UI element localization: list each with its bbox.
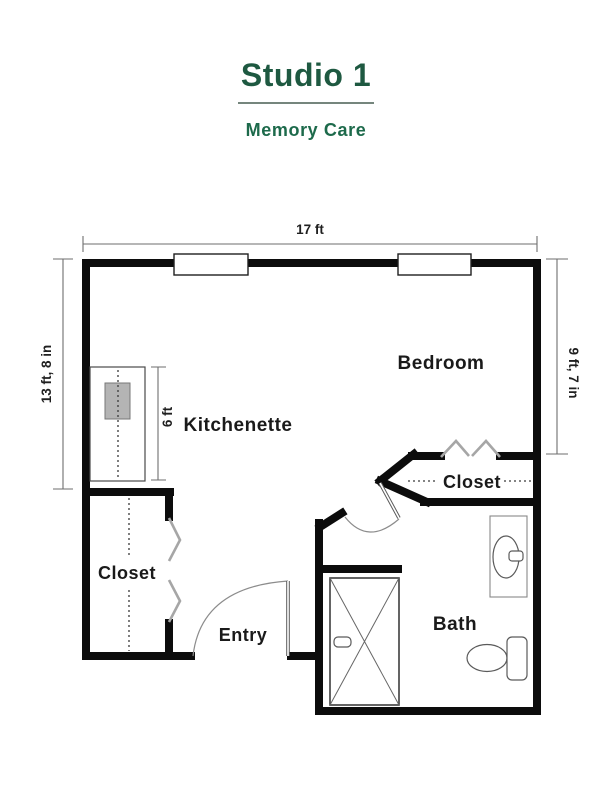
bath-label: Bath [433, 614, 477, 635]
toilet-bowl [467, 645, 507, 672]
window-left [174, 254, 248, 275]
bathroom-door-arc [345, 517, 399, 532]
dimension-kitchenette: 6 ft [151, 367, 175, 480]
closet-left-bifold-door-upper [169, 518, 180, 561]
toilet [467, 637, 527, 680]
dimension-right-label: 9 ft, 7 in [566, 347, 581, 398]
kitchenette-label: Kitchenette [184, 415, 293, 436]
closet-right-bifold-door-right [472, 441, 500, 457]
closet-right-label: Closet [443, 472, 501, 492]
window-right [398, 254, 471, 275]
kitchenette-counter [90, 367, 145, 481]
vanity-faucet [509, 551, 523, 561]
toilet-tank [507, 637, 527, 680]
closet-left-label: Closet [98, 563, 156, 583]
dimension-top-label: 17 ft [296, 222, 324, 237]
closet-right-bifold-door-left [441, 441, 469, 457]
dimension-left-label: 13 ft, 8 in [39, 345, 54, 404]
dimension-top: 17 ft [83, 222, 537, 252]
entry-label: Entry [219, 625, 268, 645]
dimension-right: 9 ft, 7 in [546, 259, 581, 454]
floor-plan-drawing: 17 ft 13 ft, 8 in 9 ft, 7 in 6 ft [0, 0, 612, 792]
dimension-left: 13 ft, 8 in [39, 259, 73, 489]
wall-closet-right-wedge-upper [380, 454, 414, 481]
wall-bath-left-angled-cap [320, 513, 342, 527]
shower-handle [334, 637, 351, 647]
bedroom-label: Bedroom [398, 353, 485, 374]
vanity [490, 516, 527, 597]
bathroom-door [345, 483, 399, 532]
dimension-kitchenette-label: 6 ft [160, 406, 175, 427]
shower [330, 578, 399, 705]
closet-left-bifold-door-lower [169, 580, 180, 622]
